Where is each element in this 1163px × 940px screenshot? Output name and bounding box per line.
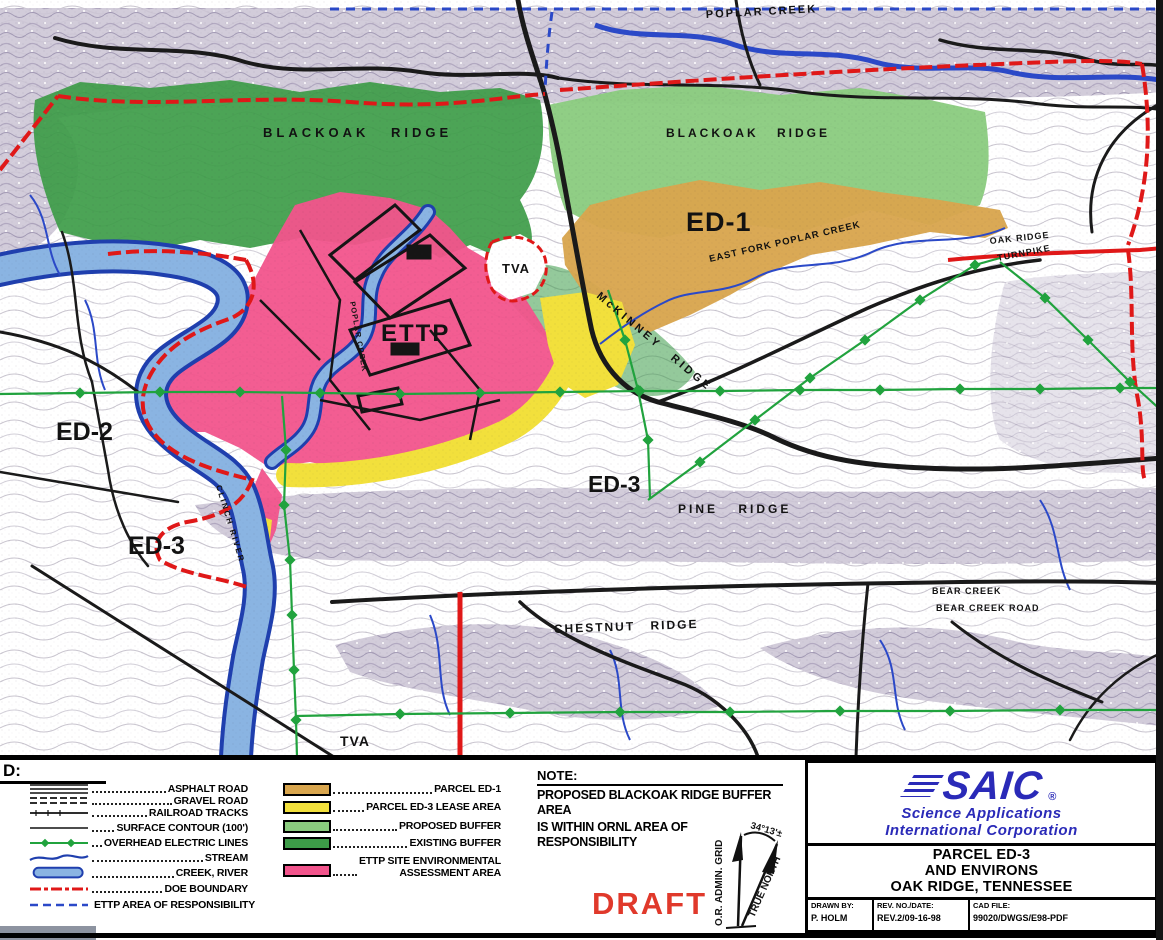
saic-logo: SAIC: [941, 768, 1044, 804]
saic-speedlines-left: [900, 775, 944, 797]
dotted-leader: [92, 883, 162, 893]
dotted-leader: [92, 868, 174, 878]
dotted-leader: [333, 866, 357, 876]
dotted-leader: [92, 852, 203, 862]
legend-label: SURFACE CONTOUR (100'): [116, 822, 248, 834]
label-tva-lower: TVA: [340, 733, 370, 749]
dotted-leader: [92, 837, 102, 847]
label-bear-creek-road: BEAR CREEK ROAD: [936, 603, 1040, 613]
drawing-title-line2: AND ENVIRONS: [808, 863, 1155, 879]
drawn-by-cell: DRAWN BY: P. HOLM: [808, 900, 874, 930]
company-name-line2: International Corporation: [885, 822, 1078, 839]
legend-item-stream: STREAM: [28, 851, 248, 865]
label-blackoak-ridge-east: BLACKOAK RIDGE: [666, 126, 830, 140]
sheet-right-border: [1156, 0, 1163, 940]
drawing-title-line3: OAK RIDGE, TENNESSEE: [808, 879, 1155, 895]
legend-box: D: ASPHALT ROAD GRAVEL ROAD RAILROAD TRA…: [0, 760, 805, 933]
existing-buffer-swatch: [283, 837, 331, 850]
label-pine-ridge: PINE RIDGE: [678, 502, 791, 516]
drawing-title-section: PARCEL ED-3 AND ENVIRONS OAK RIDGE, TENN…: [808, 846, 1155, 900]
drawn-by-value: P. HOLM: [811, 913, 869, 923]
cad-file-label: CAD FILE:: [973, 901, 1152, 910]
label-blackoak-ridge-west: BLACKOAK RIDGE: [263, 125, 452, 140]
rev-value: REV.2/09-16-98: [877, 913, 965, 923]
legend-label: PROPOSED BUFFER: [399, 820, 501, 832]
sheet-bottom-border: [0, 933, 1163, 938]
legend-label: PARCEL ED-1: [434, 783, 501, 795]
title-block: SAIC ® Science Applications Internationa…: [805, 760, 1158, 933]
legend-item-existing-buffer: EXISTING BUFFER: [283, 835, 501, 851]
doe-boundary-symbol: [28, 882, 90, 896]
drawing-title-line1: PARCEL ED-3: [808, 847, 1155, 863]
legend-label: DOE BOUNDARY: [164, 883, 248, 895]
cad-file-value: 99020/DWGS/E98-PDF: [973, 913, 1152, 923]
legend-item-parcel-ed3-lease: PARCEL ED-3 LEASE AREA: [283, 799, 501, 815]
dotted-leader: [333, 838, 407, 848]
legend-label-line2: ASSESSMENT AREA: [399, 867, 501, 879]
legend-label: OVERHEAD ELECTRIC LINES: [104, 837, 248, 849]
parcel-ed3-swatch: [283, 801, 331, 814]
stream-symbol: [28, 851, 90, 865]
dotted-leader: [333, 802, 364, 812]
label-ettp: ETTP: [381, 320, 450, 347]
railroad-tracks-symbol: [28, 806, 90, 820]
dotted-leader: [92, 807, 147, 817]
ettp-aor-symbol: [28, 898, 90, 912]
rev-cell: REV. NO./DATE: REV.2/09-16-98: [874, 900, 970, 930]
dotted-leader: [92, 822, 114, 832]
note-title: NOTE:: [537, 768, 783, 786]
note-line-1: PROPOSED BLACKOAK RIDGE BUFFER AREA: [537, 788, 783, 818]
north-arrow-angle: 34°13'±: [749, 820, 783, 840]
dotted-leader: [92, 795, 172, 805]
label-ed2: ED-2: [56, 418, 113, 446]
label-ed1: ED-1: [686, 207, 752, 237]
label-tva-upper: TVA: [502, 261, 530, 276]
legend-item-doe-boundary: DOE BOUNDARY: [28, 882, 248, 896]
parcel-ed1-swatch: [283, 783, 331, 796]
legend-label: RAILROAD TRACKS: [149, 807, 248, 819]
logo-section: SAIC ® Science Applications Internationa…: [808, 763, 1155, 846]
drawing-info-row: DRAWN BY: P. HOLM REV. NO./DATE: REV.2/0…: [808, 900, 1155, 930]
legend-label: STREAM: [205, 852, 248, 864]
bottom-panel: D: ASPHALT ROAD GRAVEL ROAD RAILROAD TRA…: [0, 760, 1163, 935]
proposed-buffer-swatch: [283, 820, 331, 833]
map-sheet: POPLAR CREEK BLACKOAK RIDGE BLACKOAK RID…: [0, 0, 1163, 940]
label-ed3-west: ED-3: [128, 532, 185, 560]
dotted-leader: [333, 821, 397, 831]
map-canvas: POPLAR CREEK BLACKOAK RIDGE BLACKOAK RID…: [0, 0, 1163, 757]
rev-label: REV. NO./DATE:: [877, 901, 965, 910]
north-arrow: 34°13'± O.R. ADMIN. GRID TRUE NORTH: [698, 816, 804, 937]
label-ed3-center: ED-3: [588, 471, 640, 497]
legend-item-ettp-aor: ETTP AREA OF RESPONSIBILITY: [28, 898, 248, 912]
surface-contour-symbol: [28, 821, 90, 835]
drawn-by-label: DRAWN BY:: [811, 901, 869, 910]
legend-label: PARCEL ED-3 LEASE AREA: [366, 801, 501, 813]
halftone-overlay: [0, 0, 1163, 757]
legend-label: EXISTING BUFFER: [409, 837, 501, 849]
legend-item-surface-contour: SURFACE CONTOUR (100'): [28, 821, 248, 835]
legend-item-parcel-ed1: PARCEL ED-1: [283, 781, 501, 797]
ettp-assessment-swatch: [283, 864, 331, 877]
north-arrow-graphic: 34°13'± O.R. ADMIN. GRID TRUE NORTH: [698, 816, 804, 932]
draft-stamp: DRAFT: [592, 886, 707, 922]
dotted-leader: [333, 784, 432, 794]
creek-river-symbol: [28, 866, 90, 880]
legend-item-overhead-electric: OVERHEAD ELECTRIC LINES: [28, 836, 248, 850]
legend-label: ETTP SITE ENVIRONMENTALASSESSMENT AREA: [359, 856, 501, 879]
legend-label: ETTP AREA OF RESPONSIBILITY: [94, 899, 255, 911]
legend-title: D:: [3, 761, 21, 781]
legend-item-proposed-buffer: PROPOSED BUFFER: [283, 818, 501, 834]
overhead-electric-symbol: [28, 836, 90, 850]
label-bear-creek: BEAR CREEK: [932, 586, 1002, 596]
legend-item-ettp-assessment: ETTP SITE ENVIRONMENTALASSESSMENT AREA: [283, 853, 501, 879]
legend-item-creek-river: CREEK, RIVER: [28, 865, 248, 881]
grid-north-label: O.R. ADMIN. GRID: [714, 840, 725, 926]
legend-label-line1: ETTP SITE ENVIRONMENTAL: [359, 855, 501, 867]
true-north-label: TRUE NORTH: [747, 855, 784, 919]
dotted-leader: [92, 783, 166, 793]
registered-mark: ®: [1048, 791, 1056, 803]
legend-label: CREEK, RIVER: [176, 867, 248, 879]
legend-item-railroad-tracks: RAILROAD TRACKS: [28, 806, 248, 820]
cad-file-cell: CAD FILE: 99020/DWGS/E98-PDF: [970, 900, 1155, 930]
